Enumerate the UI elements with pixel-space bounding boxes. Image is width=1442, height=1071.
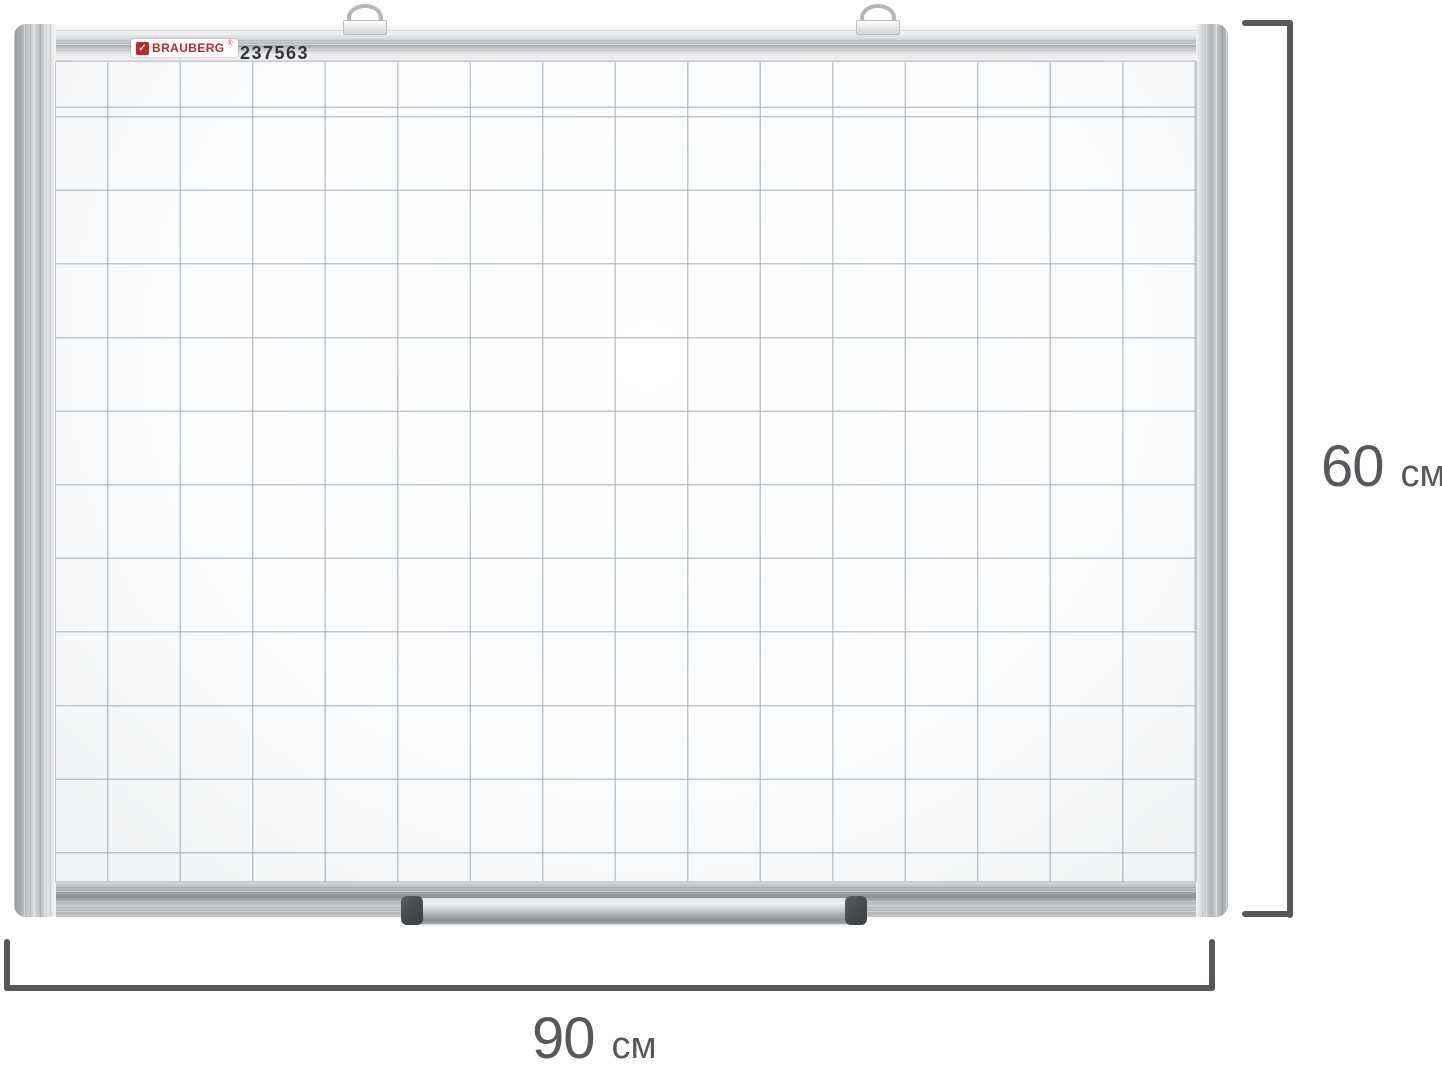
registered-mark: ® — [228, 40, 233, 47]
grid-surface — [56, 62, 1196, 881]
corner-cap-bottom-right — [1179, 868, 1231, 920]
tray-end-cap-right — [845, 896, 867, 925]
brand-name: BRAUBERG — [152, 41, 225, 55]
height-dimension-tick-bottom — [1242, 911, 1293, 917]
article-number: 237563 — [240, 43, 309, 64]
whiteboard: ✓ BRAUBERG ® 237563 — [14, 24, 1228, 917]
corner-cap-top-left — [11, 21, 63, 73]
width-dimension-line — [4, 985, 1215, 991]
brauberg-check-icon: ✓ — [136, 42, 149, 55]
width-dimension-tick-left — [4, 939, 10, 991]
width-value: 90 — [532, 1010, 595, 1068]
product-photo: ✓ BRAUBERG ® 237563 60 см 90 см — [0, 0, 1442, 1064]
tray-end-cap-left — [401, 896, 423, 925]
height-dimension-line — [1287, 20, 1293, 918]
mounting-bracket-right — [856, 4, 900, 38]
height-value: 60 — [1321, 438, 1384, 496]
width-unit: см — [612, 1027, 657, 1065]
width-dimension-label: 90 см — [532, 1010, 657, 1068]
width-dimension-tick-right — [1209, 939, 1215, 991]
frame-right — [1196, 24, 1228, 917]
height-dimension-tick-top — [1242, 20, 1293, 26]
mounting-bracket-left — [343, 4, 387, 38]
corner-cap-bottom-left — [11, 868, 63, 920]
corner-cap-top-right — [1179, 21, 1231, 73]
hanger-base — [343, 20, 387, 35]
marker-tray — [408, 898, 860, 924]
height-unit: см — [1401, 455, 1442, 493]
brand-label: ✓ BRAUBERG ® — [131, 39, 238, 57]
hanger-base — [856, 20, 900, 35]
frame-left — [14, 24, 56, 917]
height-dimension-label: 60 см — [1321, 438, 1442, 496]
